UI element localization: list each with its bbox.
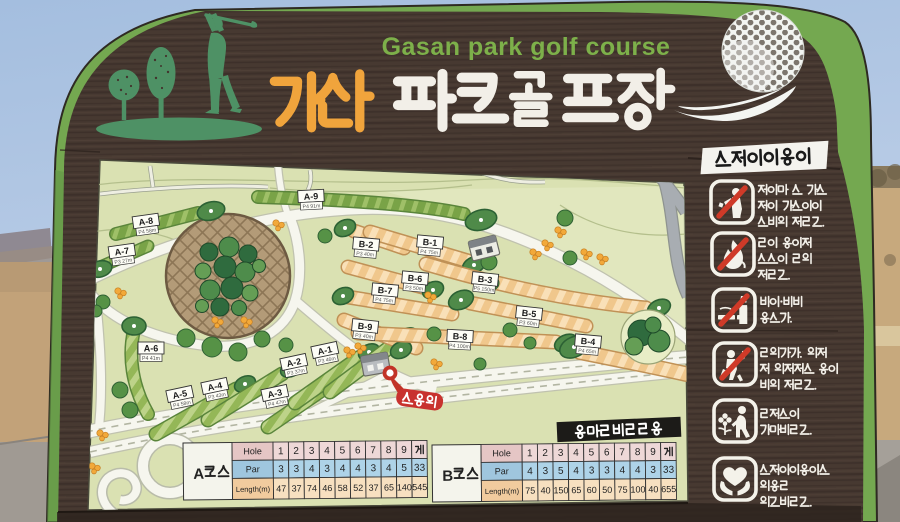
svg-text:B-5: B-5 [521,308,536,319]
svg-text:5: 5 [558,466,564,477]
svg-text:150: 150 [553,485,568,495]
svg-text:B-1: B-1 [422,237,437,248]
svg-text:P4 41m: P4 41m [142,356,160,362]
svg-text:58: 58 [338,483,348,493]
svg-text:3: 3 [604,465,610,476]
svg-text:B-8: B-8 [453,331,468,342]
svg-text:60: 60 [587,485,597,495]
svg-text:1: 1 [527,448,533,459]
svg-text:3: 3 [589,465,595,476]
svg-text:75: 75 [525,486,535,496]
svg-text:4: 4 [620,465,626,476]
svg-text:100: 100 [630,484,645,494]
svg-text:7: 7 [619,447,625,458]
svg-text:Par: Par [246,464,260,474]
svg-text:4: 4 [355,463,361,474]
svg-text:Par: Par [495,466,509,476]
svg-text:Gasan park golf course: Gasan park golf course [382,33,671,61]
svg-text:545: 545 [412,482,427,492]
svg-text:50: 50 [602,485,612,495]
svg-text:Hole: Hole [243,446,262,456]
svg-text:2: 2 [293,446,299,457]
svg-text:B-9: B-9 [357,321,372,332]
svg-text:8: 8 [386,445,392,456]
svg-text:4: 4 [386,463,392,474]
svg-text:3: 3 [650,465,656,476]
svg-text:A: A [193,466,204,483]
svg-text:1: 1 [278,446,284,457]
svg-text:8: 8 [635,447,641,458]
svg-text:B-4: B-4 [580,336,595,347]
svg-text:4: 4 [324,446,330,457]
svg-text:4: 4 [527,466,533,477]
svg-text:37: 37 [369,483,379,493]
svg-text:A-9: A-9 [303,191,318,202]
svg-text:4: 4 [309,464,315,475]
svg-text:B: B [442,468,453,485]
svg-text:655: 655 [661,484,676,494]
svg-text:9: 9 [650,447,656,458]
svg-text:74: 74 [307,483,317,493]
svg-text:3: 3 [309,446,315,457]
svg-text:4: 4 [573,448,579,459]
svg-text:A-7: A-7 [114,246,130,258]
svg-text:A-6: A-6 [144,344,159,354]
svg-text:B-7: B-7 [377,285,392,296]
svg-text:52: 52 [353,483,363,493]
svg-text:40: 40 [648,484,658,494]
svg-text:5: 5 [589,447,595,458]
svg-text:40: 40 [541,485,551,495]
svg-text:4: 4 [340,463,346,474]
svg-text:B-3: B-3 [477,274,492,285]
svg-text:46: 46 [322,483,332,493]
svg-text:Length(m): Length(m) [236,485,271,494]
svg-text:3: 3 [543,466,549,477]
svg-text:P4 91m: P4 91m [302,203,320,210]
svg-text:140: 140 [397,482,412,492]
svg-text:7: 7 [370,445,376,456]
svg-text:37: 37 [292,483,302,493]
svg-text:4: 4 [573,466,579,477]
svg-text:75: 75 [618,485,628,495]
svg-text:B-2: B-2 [358,239,373,250]
svg-text:5: 5 [401,463,407,474]
svg-text:9: 9 [401,445,407,456]
svg-text:3: 3 [278,464,284,475]
svg-text:P4 100m: P4 100m [449,343,470,350]
svg-text:5: 5 [340,445,346,456]
svg-text:A-8: A-8 [138,216,154,228]
svg-text:47: 47 [276,484,286,494]
svg-text:65: 65 [571,485,581,495]
svg-text:2: 2 [542,448,548,459]
svg-text:3: 3 [324,464,330,475]
svg-text:33: 33 [414,463,426,474]
svg-text:4: 4 [635,465,641,476]
svg-text:65: 65 [384,482,394,492]
svg-text:3: 3 [558,448,564,459]
svg-text:3: 3 [371,463,377,474]
svg-text:Length(m): Length(m) [485,487,520,496]
svg-text:3: 3 [294,464,300,475]
svg-text:33: 33 [663,465,675,476]
svg-text:Hole: Hole [492,448,511,458]
svg-text:6: 6 [355,445,361,456]
svg-text:6: 6 [604,447,610,458]
svg-text:B-6: B-6 [407,273,422,284]
